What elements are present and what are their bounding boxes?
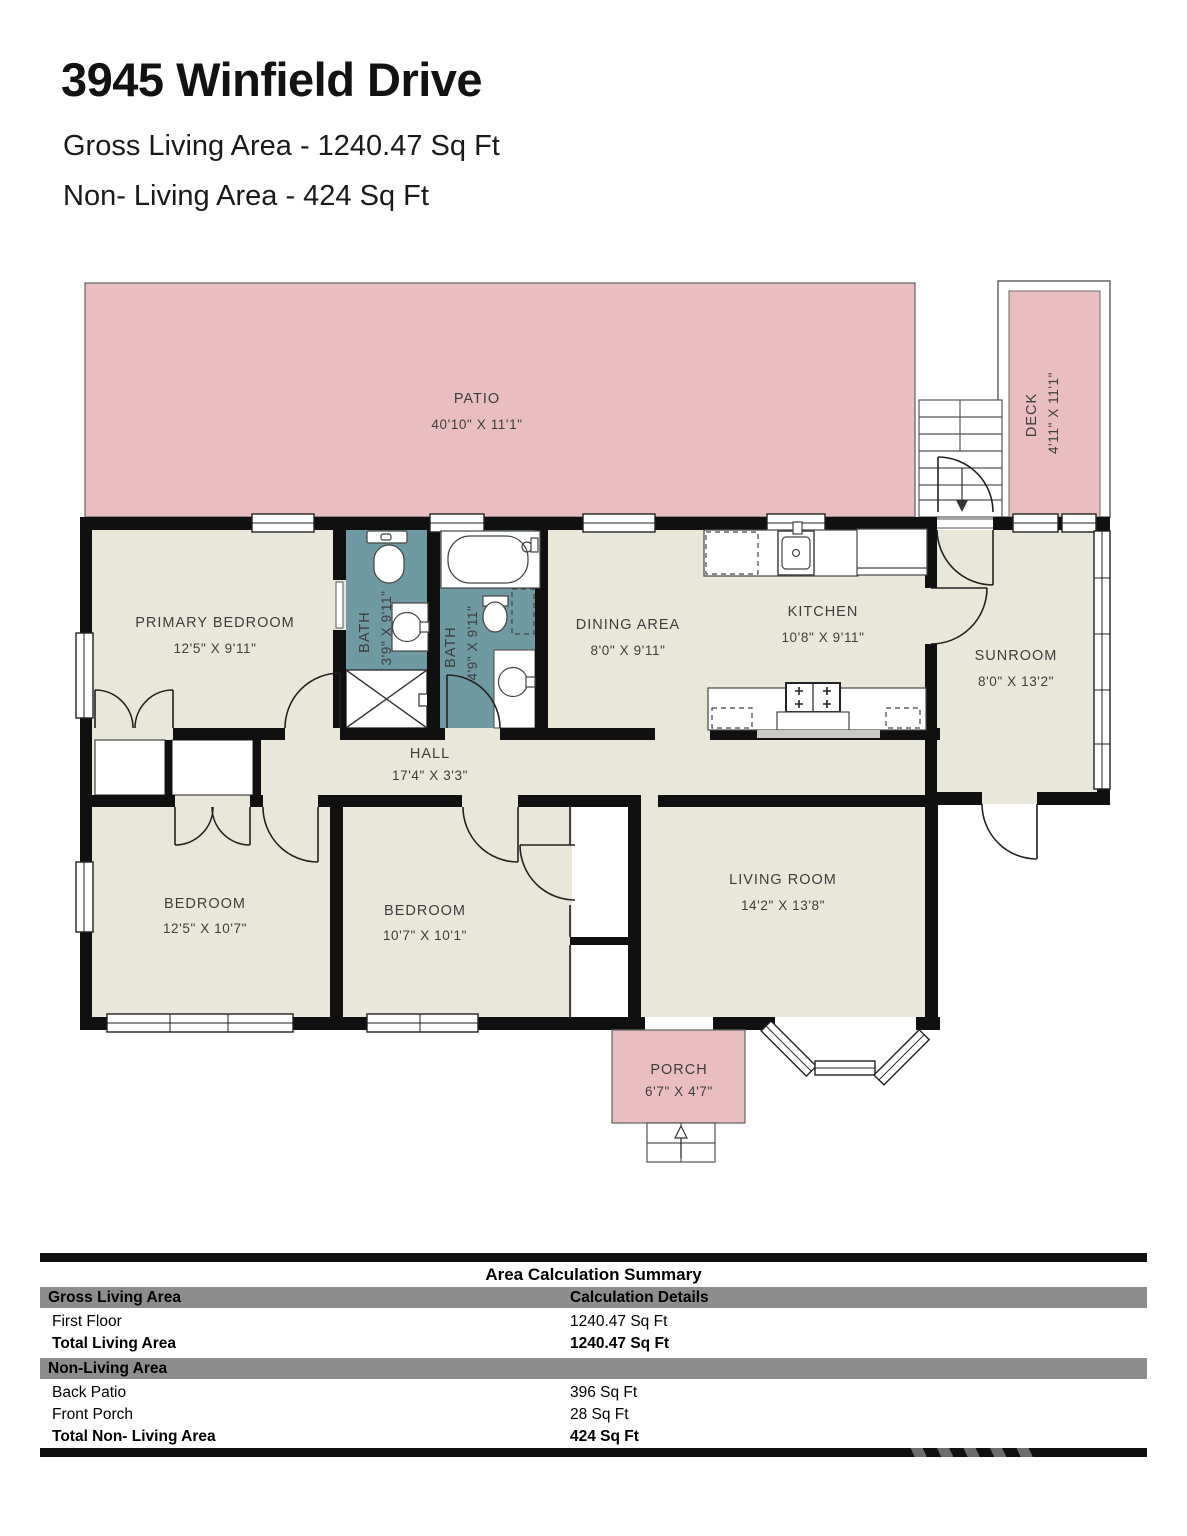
bedroom2-label: BEDROOM <box>384 903 466 919</box>
exterior-cutout <box>937 804 1097 1030</box>
table-title: Area Calculation Summary <box>40 1262 1147 1287</box>
area-calculation-summary: Area Calculation Summary Gross Living Ar… <box>40 1253 1147 1457</box>
porch-steps <box>647 1123 715 1162</box>
dining-area-dims: 8'0" X 9'11" <box>591 643 666 658</box>
living-room-label: LIVING ROOM <box>729 872 837 888</box>
patio-area: PATIO 40'10" X 11'1" <box>85 283 915 517</box>
sunroom-label: SUNROOM <box>975 648 1058 664</box>
bay-window <box>761 1021 929 1085</box>
bath2-label: BATH <box>443 626 459 668</box>
bedroom1-label: BEDROOM <box>164 896 246 912</box>
deck-area: DECK 4'11" X 11'1" <box>998 281 1110 517</box>
bathtub-icon <box>441 531 540 588</box>
hall-closets <box>95 740 261 795</box>
non-living-header-row: Non-Living Area <box>40 1358 1147 1379</box>
exterior-staircase <box>919 400 1002 517</box>
table-row: First Floor 1240.47 Sq Ft <box>40 1311 1147 1333</box>
row-value: 1240.47 Sq Ft <box>570 1311 667 1333</box>
row-value: 424 Sq Ft <box>570 1426 639 1448</box>
table-row: Front Porch 28 Sq Ft <box>40 1404 1147 1426</box>
bath2-dims: 4'9" X 9'11" <box>465 606 480 681</box>
table-row: Total Non- Living Area 424 Sq Ft <box>40 1426 1147 1448</box>
watermark-marks <box>907 1448 1042 1457</box>
sunroom-dims: 8'0" X 13'2" <box>978 674 1054 689</box>
calculation-details-header: Calculation Details <box>570 1287 709 1308</box>
table-top-bar <box>40 1253 1147 1262</box>
gross-living-header-row: Gross Living Area Calculation Details <box>40 1287 1147 1308</box>
hall-dims: 17'4" X 3'3" <box>392 768 468 783</box>
row-value: 1240.47 Sq Ft <box>570 1333 669 1355</box>
porch-label: PORCH <box>650 1062 707 1078</box>
living-room-dims: 14'2" X 13'8" <box>741 898 825 913</box>
row-value: 28 Sq Ft <box>570 1404 629 1426</box>
row-label: Back Patio <box>52 1382 126 1404</box>
table-bottom-bar <box>40 1448 1147 1457</box>
bath1-label: BATH <box>357 611 373 653</box>
bedroom2-closet <box>570 807 628 1017</box>
bath1-dims: 3'9" X 9'11" <box>379 591 394 666</box>
deck-label: DECK <box>1024 393 1040 437</box>
porch-dims: 6'7" X 4'7" <box>645 1084 713 1099</box>
table-row: Back Patio 396 Sq Ft <box>40 1382 1147 1404</box>
dining-area-label: DINING AREA <box>576 617 680 633</box>
bedroom2-dims: 10'7" X 10'1" <box>383 928 467 943</box>
row-label: Front Porch <box>52 1404 133 1426</box>
gross-living-area-header: Gross Living Area <box>48 1287 181 1308</box>
deck-dims: 4'11" X 11'1" <box>1046 372 1061 454</box>
floorplan-page: 3945 Winfield Drive Gross Living Area - … <box>0 0 1187 1536</box>
bedroom1-dims: 12'5" X 10'7" <box>163 921 247 936</box>
primary-bedroom-label: PRIMARY BEDROOM <box>135 615 295 631</box>
threshold <box>937 519 993 528</box>
table-row: Total Living Area 1240.47 Sq Ft <box>40 1333 1147 1355</box>
toilet-icon <box>483 596 508 632</box>
kitchen-dims: 10'8" X 9'11" <box>781 630 864 645</box>
patio-dims: 40'10" X 11'1" <box>431 417 522 432</box>
patio-label: PATIO <box>454 391 500 407</box>
row-value: 396 Sq Ft <box>570 1382 637 1404</box>
porch-area: PORCH 6'7" X 4'7" <box>612 1030 745 1123</box>
non-living-area-header: Non-Living Area <box>48 1358 167 1379</box>
sink-icon <box>392 603 429 651</box>
row-label: Total Living Area <box>52 1333 176 1355</box>
row-label: Total Non- Living Area <box>52 1426 216 1448</box>
kitchen-label: KITCHEN <box>788 604 859 620</box>
hall-label: HALL <box>410 746 450 762</box>
primary-bedroom-dims: 12'5" X 9'11" <box>173 641 256 656</box>
row-label: First Floor <box>52 1311 122 1333</box>
